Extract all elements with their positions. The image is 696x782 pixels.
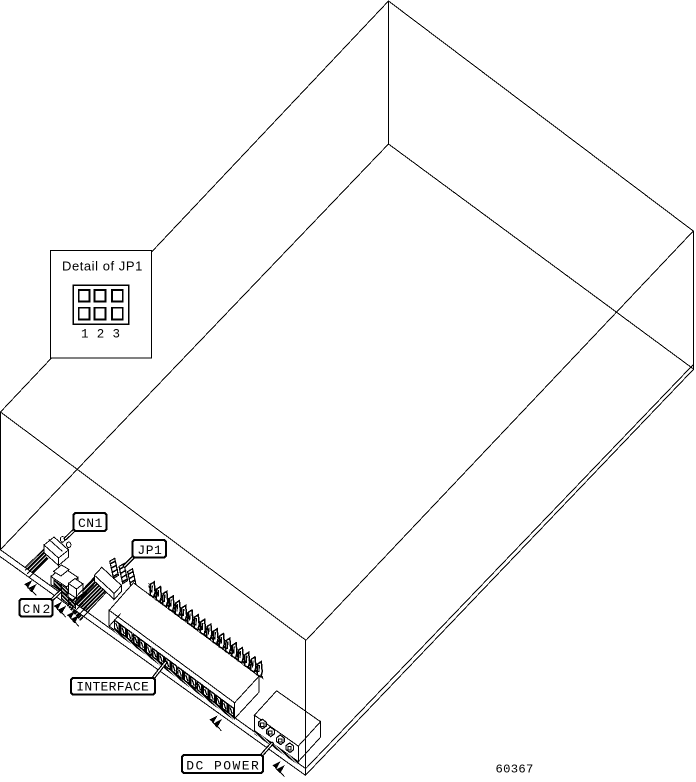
svg-text:60367: 60367 <box>496 763 534 777</box>
svg-text:CN1: CN1 <box>78 516 103 531</box>
svg-text:Detail of JP1: Detail of JP1 <box>62 259 143 274</box>
svg-text:CN2: CN2 <box>23 602 53 617</box>
svg-text:INTERFACE: INTERFACE <box>76 680 149 695</box>
svg-text:1 2 3: 1 2 3 <box>81 328 120 342</box>
svg-text:DC POWER: DC POWER <box>186 759 260 774</box>
svg-text:JP1: JP1 <box>137 543 162 558</box>
